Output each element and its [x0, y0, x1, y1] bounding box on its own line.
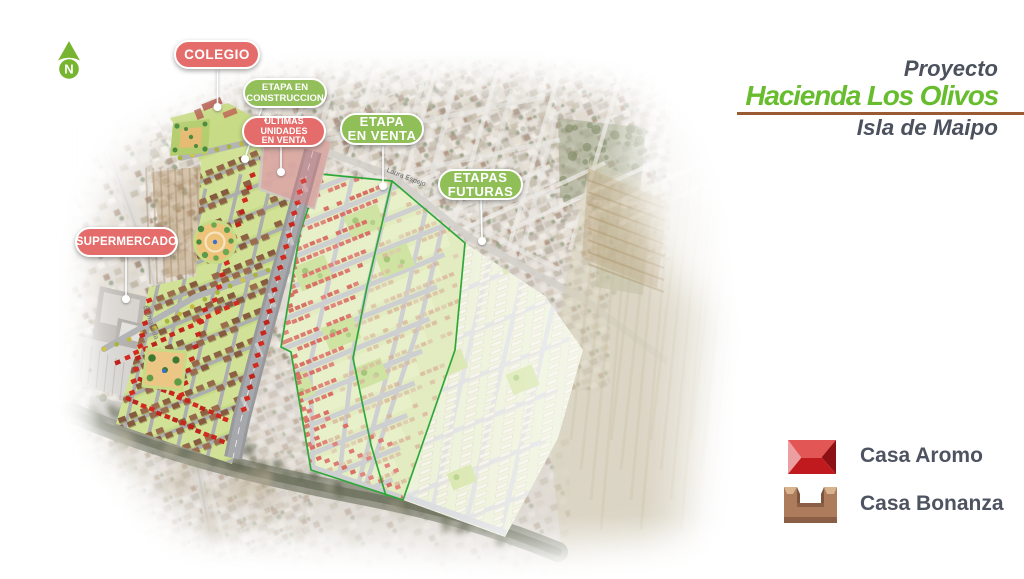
svg-text:N: N	[64, 62, 73, 77]
